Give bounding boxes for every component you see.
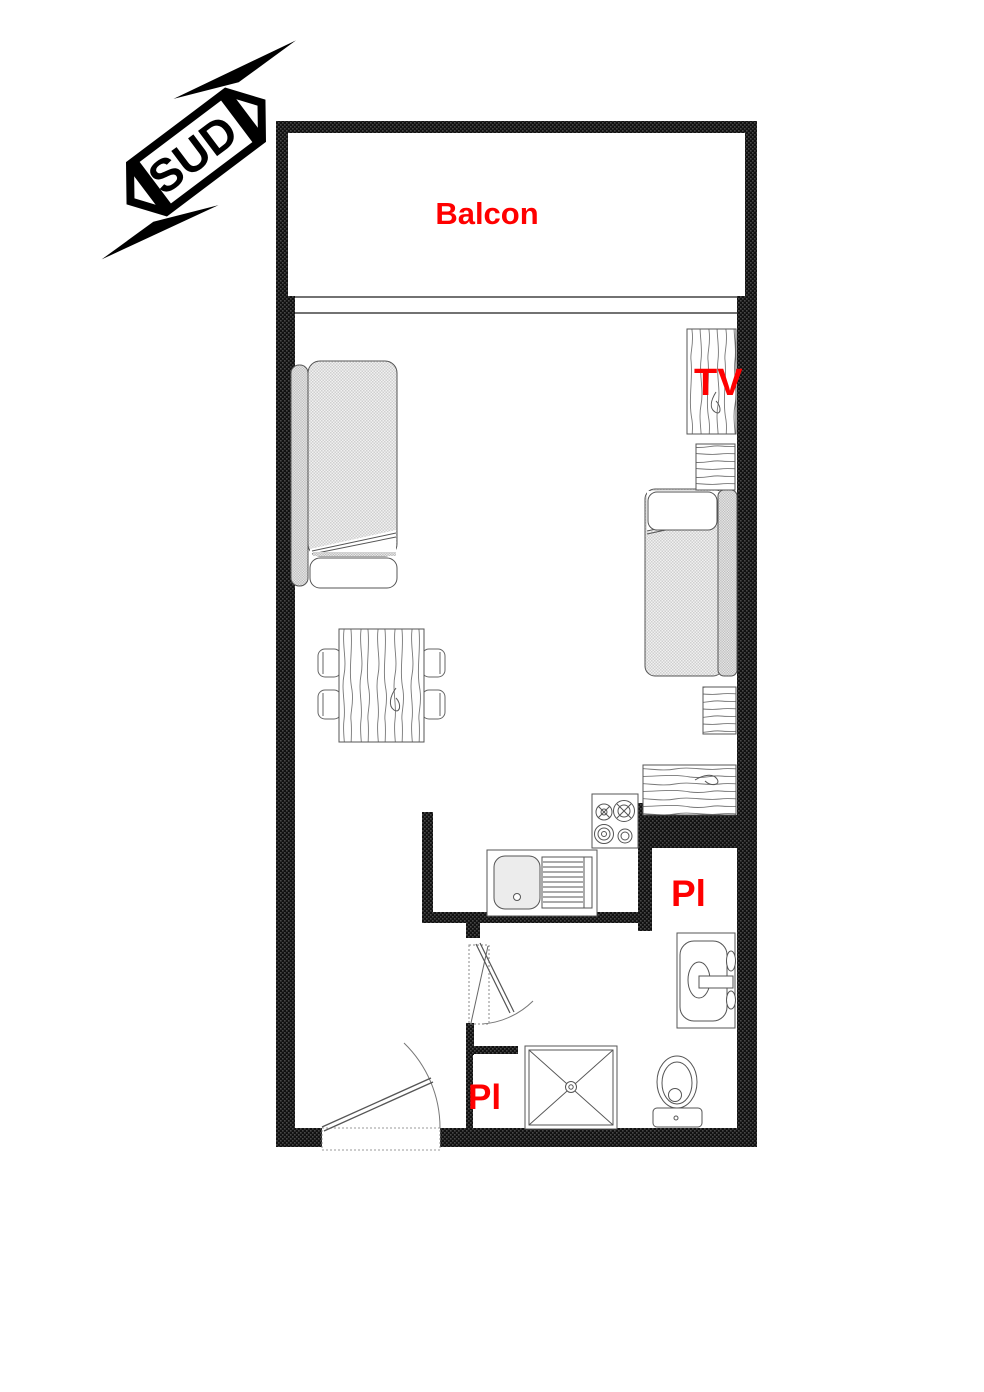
tv-label: TV xyxy=(694,362,743,404)
nightstand-lower xyxy=(703,687,736,734)
bed xyxy=(645,489,737,676)
bottom-wall-left xyxy=(276,1128,322,1147)
sofa-bed xyxy=(291,361,397,588)
bed-pillow xyxy=(648,492,717,530)
bed-backrest xyxy=(718,490,737,676)
kitchen-sink xyxy=(487,850,597,916)
window-jamb-left xyxy=(276,296,295,315)
entry-door-leaf-line2 xyxy=(324,1082,433,1131)
shower xyxy=(525,1046,617,1129)
dining-table xyxy=(339,629,424,742)
balcony-right-wall xyxy=(745,133,757,296)
shelf-unit xyxy=(643,765,736,815)
sofa-bed-pillow xyxy=(310,558,397,588)
entry-door-swing-arc xyxy=(404,1043,440,1128)
entry-door-leaf-line1 xyxy=(322,1078,431,1127)
bathroom-vanity xyxy=(677,933,736,1028)
stove xyxy=(592,794,638,848)
entry-door xyxy=(322,1043,440,1150)
shelf-unit-top xyxy=(643,765,736,815)
nightstand-upper xyxy=(696,444,735,490)
sofa-bed-mattress xyxy=(308,361,397,556)
bathroom-top-wall xyxy=(649,815,748,848)
dining-set xyxy=(318,629,445,742)
window-jamb-right xyxy=(737,296,757,315)
floor-plan-drawing: SUD xyxy=(0,0,984,1392)
bathroom-door-leaf-line2 xyxy=(480,943,514,1012)
closet-lower-label: Pl xyxy=(468,1078,501,1117)
chair-top-left xyxy=(318,649,341,677)
balcony-label: Balcon xyxy=(435,196,538,231)
balcony-top-wall xyxy=(276,121,757,133)
vanity-knob-bottom xyxy=(727,991,736,1009)
chair-top-right xyxy=(422,649,445,677)
sink-basin xyxy=(494,856,540,909)
bottom-wall-right xyxy=(440,1128,757,1147)
shower-drain-outer xyxy=(566,1082,577,1093)
hall-wall-stub-top xyxy=(466,923,480,938)
sink-edge-strip xyxy=(584,857,592,908)
bathroom-door xyxy=(469,943,533,1024)
balcony-left-wall xyxy=(276,133,288,296)
closet-wall-horizontal xyxy=(474,1046,518,1054)
toilet xyxy=(653,1056,702,1127)
chair-bottom-right xyxy=(422,690,445,719)
hall-wall-stub-mid xyxy=(466,1023,474,1055)
bathroom-door-swing-arc xyxy=(482,1001,533,1024)
sink-drainboard xyxy=(542,857,584,908)
chair-bottom-left xyxy=(318,690,341,719)
kitchen-left-wall xyxy=(422,812,433,923)
toilet-flush xyxy=(669,1089,682,1102)
closet-upper-label: Pl xyxy=(671,873,706,914)
sink-drain xyxy=(514,894,521,901)
sofa-bed-backrest xyxy=(291,365,308,586)
sofa-bed-blanket-strip xyxy=(313,552,396,556)
vanity-knob-top xyxy=(727,951,736,971)
right-wall xyxy=(737,315,757,1147)
compass-arrow: SUD xyxy=(50,19,347,281)
bathroom-door-frame-diagonal xyxy=(471,946,488,1023)
balcony-window xyxy=(295,297,737,313)
floor-plan-page: SUD xyxy=(0,0,984,1392)
entry-door-sill xyxy=(322,1128,440,1150)
vanity-faucet xyxy=(699,976,733,988)
